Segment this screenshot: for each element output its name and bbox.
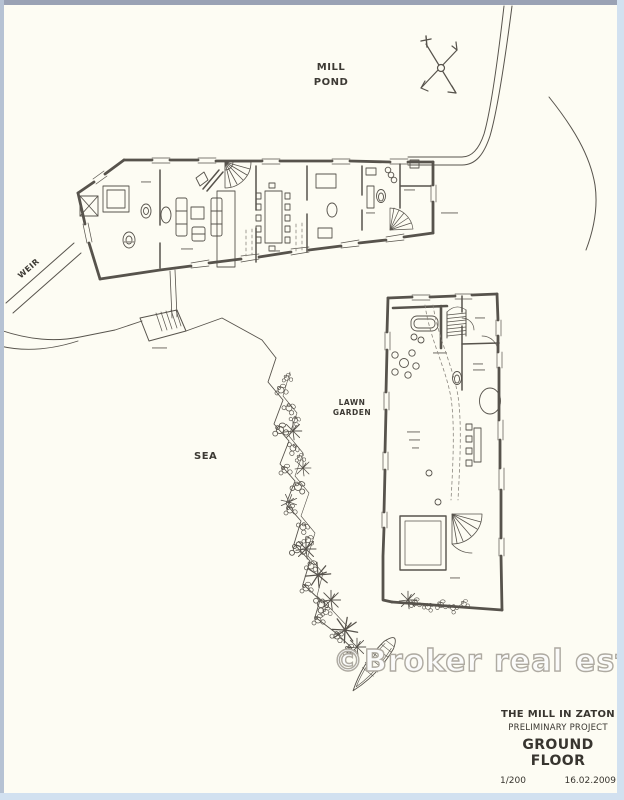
mill-pond-line2: POND bbox=[306, 75, 356, 90]
north-arrow-icon bbox=[421, 36, 457, 93]
weir-lines bbox=[6, 243, 81, 313]
annex-interior bbox=[80, 186, 135, 248]
agave-plants bbox=[279, 422, 366, 656]
service-rooms bbox=[316, 160, 419, 238]
page-border-top bbox=[0, 0, 624, 5]
lower-building bbox=[382, 294, 504, 615]
straight-stair bbox=[447, 307, 466, 338]
drawing-scale: 1/200 bbox=[500, 776, 526, 786]
upper-building-windows bbox=[83, 158, 436, 268]
scale-date-row: 1/200 16.02.2009 bbox=[498, 776, 618, 786]
micro-label-marks bbox=[124, 181, 485, 579]
page-border-bottom bbox=[0, 793, 624, 800]
lawn-garden-line1: LAWN bbox=[328, 398, 376, 408]
lower-terrace bbox=[400, 516, 446, 570]
lawn-garden-line2: GARDEN bbox=[328, 408, 376, 418]
page-border-left bbox=[0, 0, 4, 800]
lawn-garden-label: LAWN GARDEN bbox=[328, 398, 376, 418]
spiral-stair-mill bbox=[225, 162, 251, 188]
lower-building-interior bbox=[393, 296, 499, 390]
drawing-date: 16.02.2009 bbox=[564, 776, 616, 786]
floor-plan-drawing bbox=[0, 0, 624, 800]
sheet-title: GROUND FLOOR bbox=[498, 737, 618, 769]
sea-label: SEA bbox=[194, 451, 217, 462]
shore-stairs bbox=[140, 270, 186, 341]
mill-pond-line1: MILL bbox=[306, 60, 356, 75]
scanned-plan-page: MILL POND WEIR SEA LAWN GARDEN ©Broker r… bbox=[0, 0, 624, 800]
spiral-stair-lower bbox=[452, 514, 482, 553]
hall-furniture bbox=[141, 172, 235, 267]
lower-furniture bbox=[392, 316, 501, 505]
fan-stair-mill bbox=[390, 208, 413, 230]
project-phase: PRELIMINARY PROJECT bbox=[498, 723, 618, 733]
title-block: THE MILL IN ZATON PRELIMINARY PROJECT GR… bbox=[498, 709, 618, 786]
project-title: THE MILL IN ZATON bbox=[498, 709, 618, 720]
upper-building bbox=[78, 158, 436, 279]
access-road bbox=[408, 6, 596, 250]
page-border-right bbox=[617, 0, 624, 800]
dining-room bbox=[256, 183, 290, 251]
broker-watermark: ©Broker real estate bbox=[333, 644, 624, 679]
mill-pond-label: MILL POND bbox=[306, 60, 356, 90]
